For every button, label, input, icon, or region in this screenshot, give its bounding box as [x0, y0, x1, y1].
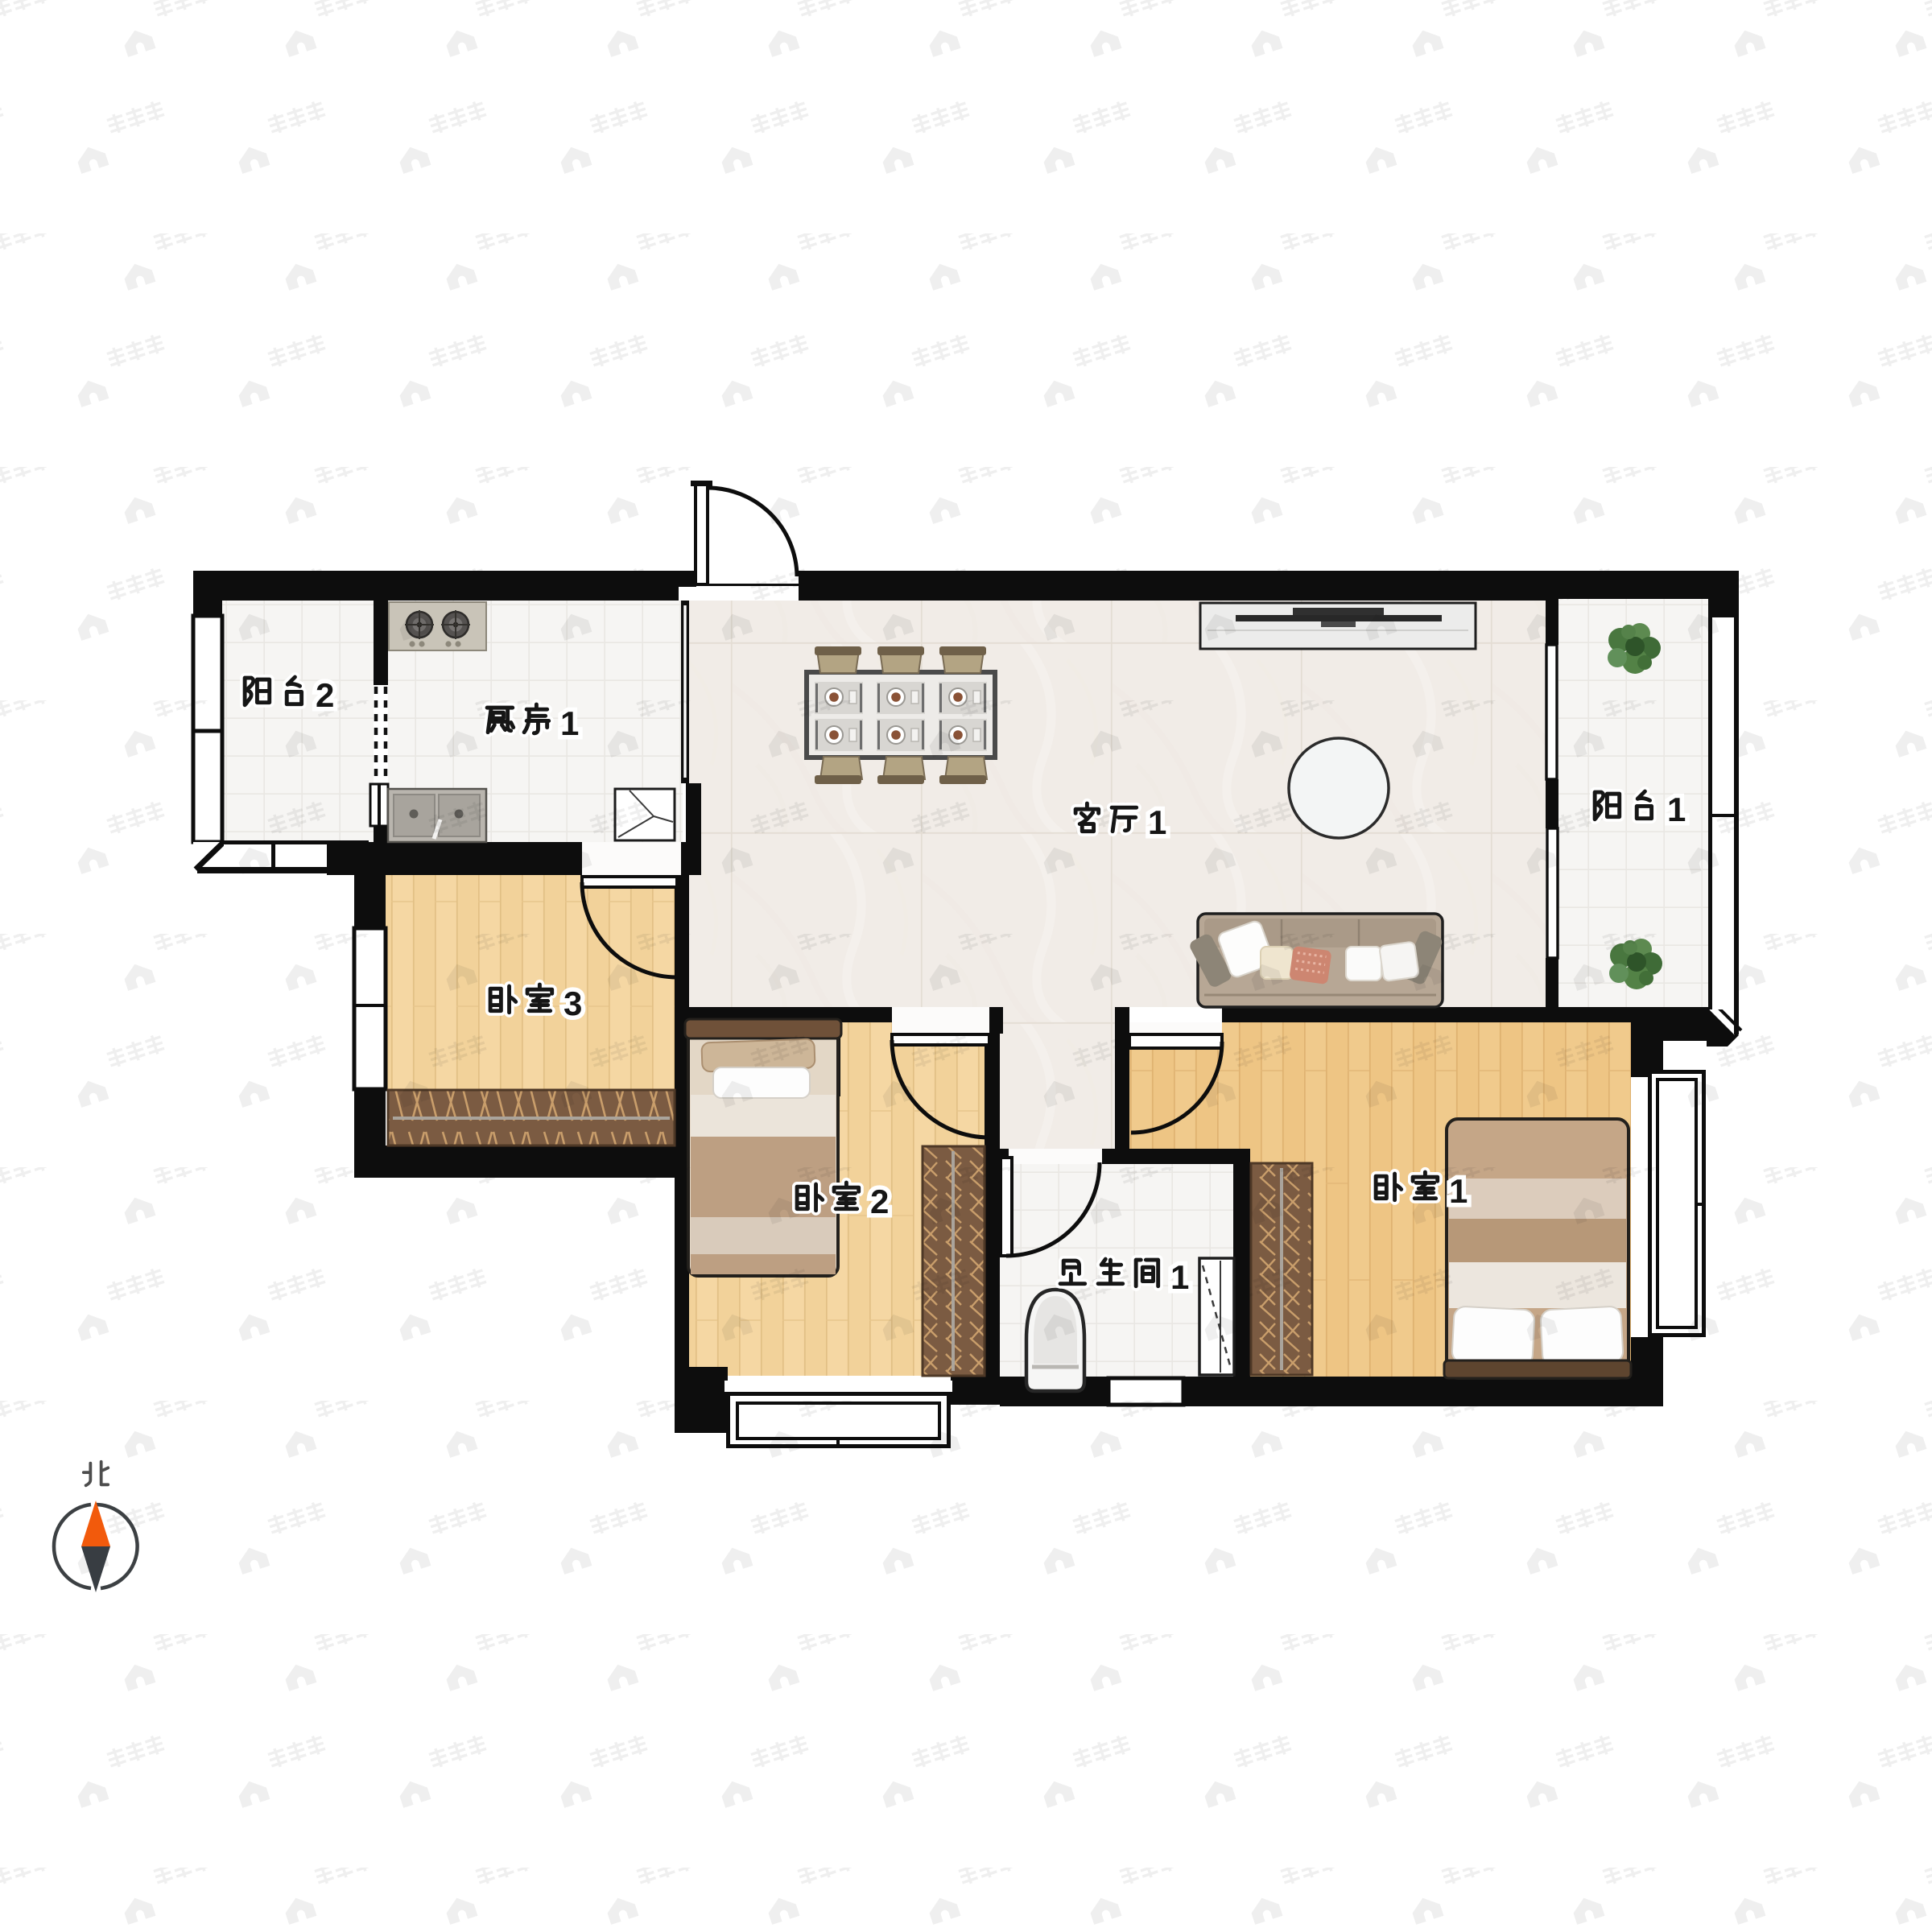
- svg-text:1: 1: [1449, 1172, 1468, 1210]
- svg-text:1: 1: [560, 704, 579, 742]
- svg-text:1: 1: [1148, 803, 1166, 841]
- svg-text:3: 3: [563, 985, 582, 1022]
- svg-text:2: 2: [316, 676, 334, 714]
- svg-text:1: 1: [1667, 791, 1686, 828]
- svg-text:1: 1: [1170, 1258, 1189, 1296]
- svg-text:2: 2: [870, 1183, 889, 1220]
